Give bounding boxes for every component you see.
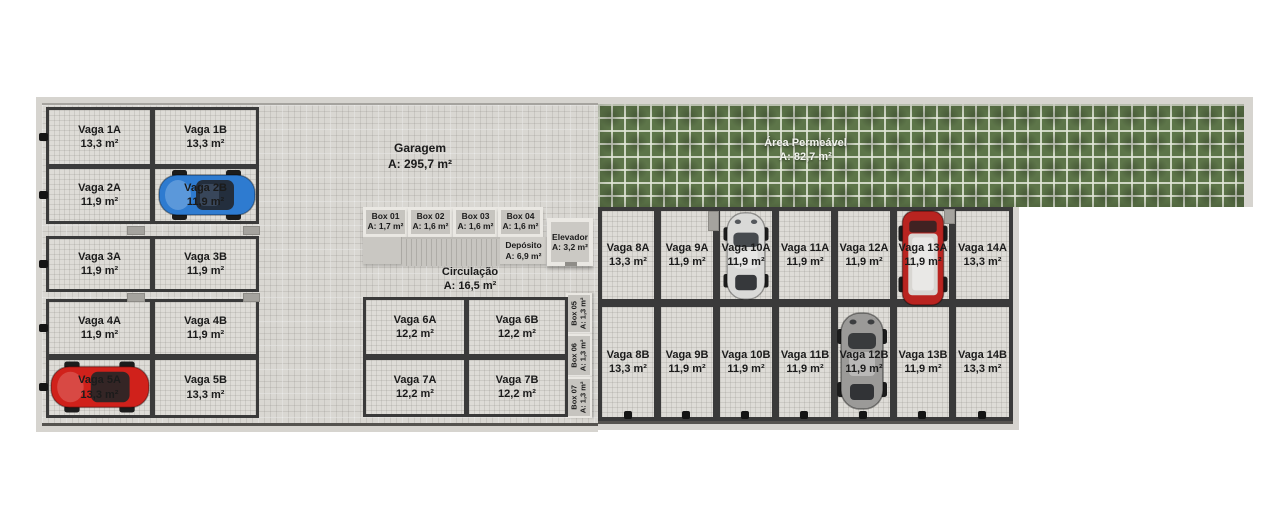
pillar [243, 226, 260, 235]
spot-name: Vaga 12A [840, 241, 889, 255]
parking-spot-1b: Vaga 1B13,3 m² [152, 107, 259, 167]
spot-area: 12,2 m² [394, 327, 437, 341]
parking-spot-3a: Vaga 3A11,9 m² [46, 236, 153, 292]
spot-area: 13,3 m² [78, 137, 121, 151]
spot-area: 11,9 m² [78, 264, 121, 278]
parking-spot-4a: Vaga 4A11,9 m² [46, 299, 153, 357]
box-07-area: A: 1,3 m² [579, 382, 588, 414]
spot-name: Vaga 6A [394, 313, 437, 327]
spot-area: 11,9 m² [722, 362, 771, 376]
garage-label: Garagem A: 295,7 m² [355, 141, 485, 172]
spot-name: Vaga 7B [496, 373, 539, 387]
spot-name: Vaga 1B [184, 123, 227, 137]
door-marker [624, 411, 632, 419]
spot-name: Vaga 2A [78, 181, 121, 195]
deposit-room: Depósito A: 6,9 m² [500, 237, 547, 264]
spot-area: 11,9 m² [78, 195, 121, 209]
parking-spot-8a: Vaga 8A13,3 m² [598, 207, 658, 303]
parking-spot-14b: Vaga 14B13,3 m² [952, 303, 1013, 421]
parking-spot-6b: Vaga 6B12,2 m² [466, 297, 568, 357]
parking-spot-11b: Vaga 11B11,9 m² [775, 303, 835, 421]
wall-post [39, 260, 48, 268]
parking-spot-4b: Vaga 4B11,9 m² [152, 299, 259, 357]
parking-spot-9b: Vaga 9B11,9 m² [657, 303, 717, 421]
storage-box-04: Box 04A: 1,6 m² [498, 207, 543, 237]
box-06-name: Box 06 [570, 340, 579, 372]
spot-area: 13,3 m² [958, 255, 1007, 269]
spot-name: Vaga 13A [899, 241, 948, 255]
spot-name: Vaga 4A [78, 314, 121, 328]
spot-name: Vaga 11A [781, 241, 829, 255]
parking-spot-10b: Vaga 10B11,9 m² [716, 303, 776, 421]
spot-area: 11,9 m² [184, 264, 227, 278]
parking-spot-14a: Vaga 14A13,3 m² [952, 207, 1013, 303]
spot-area: 11,9 m² [840, 255, 889, 269]
spot-area: 11,9 m² [781, 255, 829, 269]
parking-spot-3b: Vaga 3B11,9 m² [152, 236, 259, 292]
spot-area: 11,9 m² [781, 362, 829, 376]
elevator-size: A: 3,2 m² [552, 242, 588, 252]
spot-area: 11,9 m² [899, 362, 948, 376]
storage-box-02: Box 02A: 1,6 m² [408, 207, 453, 237]
door-marker [918, 411, 926, 419]
parking-spot-7b: Vaga 7B12,2 m² [466, 357, 568, 417]
pillar [708, 211, 719, 231]
garage-title: Garagem [355, 141, 485, 157]
parking-spot-5b: Vaga 5B13,3 m² [152, 357, 259, 418]
spot-area: 13,3 m² [607, 255, 650, 269]
box-05-area: A: 1,3 m² [579, 298, 588, 330]
door-marker [978, 411, 986, 419]
box-04-area: A: 1,6 m² [503, 222, 539, 232]
parking-spot-13b: Vaga 13B11,9 m² [893, 303, 953, 421]
spot-name: Vaga 3A [78, 250, 121, 264]
box-02-area: A: 1,6 m² [413, 222, 449, 232]
permeable-area-size: A: 82,7 m² [598, 150, 1013, 164]
spot-name: Vaga 14A [958, 241, 1007, 255]
spot-name: Vaga 10B [722, 348, 771, 362]
circulation-title: Circulação [370, 265, 570, 279]
spot-area: 13,3 m² [78, 388, 121, 402]
spot-name: Vaga 12B [840, 348, 889, 362]
parking-spot-8b: Vaga 8B13,3 m² [598, 303, 658, 421]
spot-area: 11,9 m² [184, 328, 227, 342]
storage-box-07: Box 07A: 1,3 m² [566, 377, 592, 418]
wall-post [39, 191, 48, 199]
spot-area: 13,3 m² [184, 137, 227, 151]
wall-post [39, 133, 48, 141]
garage-size: A: 295,7 m² [355, 157, 485, 173]
deposit-title: Depósito [505, 240, 541, 250]
permeable-area-title: Área Permeável [598, 136, 1013, 150]
spot-name: Vaga 13B [899, 348, 948, 362]
elevator-room: ElevadorA: 3,2 m² [547, 218, 593, 266]
spot-name: Vaga 6B [496, 313, 539, 327]
permeable-area: Área Permeável A: 82,7 m² [598, 97, 1253, 207]
spot-area: 12,2 m² [496, 387, 539, 401]
box-01-area: A: 1,7 m² [368, 222, 404, 232]
spot-name: Vaga 9A [666, 241, 709, 255]
spot-name: Vaga 4B [184, 314, 227, 328]
box-07-name: Box 07 [570, 382, 579, 414]
spot-name: Vaga 8B [607, 348, 650, 362]
parking-spot-11a: Vaga 11A11,9 m² [775, 207, 835, 303]
door-marker [741, 411, 749, 419]
parking-spot-1a: Vaga 1A13,3 m² [46, 107, 153, 167]
door-marker [800, 411, 808, 419]
staircase [402, 237, 500, 266]
pillar [127, 226, 145, 235]
spot-name: Vaga 10A [722, 241, 771, 255]
spot-name: Vaga 3B [184, 250, 227, 264]
storage-box-03: Box 03A: 1,6 m² [453, 207, 498, 237]
parking-spot-2a: Vaga 2A11,9 m² [46, 166, 153, 224]
spot-name: Vaga 1A [78, 123, 121, 137]
spot-area: 11,9 m² [666, 255, 709, 269]
spot-name: Vaga 5B [184, 373, 227, 387]
spot-area: 13,3 m² [607, 362, 650, 376]
circulation-size: A: 16,5 m² [370, 279, 570, 293]
spot-area: 12,2 m² [394, 387, 437, 401]
parking-spot-6a: Vaga 6A12,2 m² [363, 297, 467, 357]
pillar [127, 293, 145, 302]
spot-area: 13,3 m² [958, 362, 1007, 376]
spot-name: Vaga 5A [78, 373, 121, 387]
spot-area: 11,9 m² [899, 255, 948, 269]
wall-post [39, 324, 48, 332]
storage-box-05: Box 05A: 1,3 m² [566, 293, 592, 334]
box-03-area: A: 1,6 m² [458, 222, 494, 232]
spot-name: Vaga 7A [394, 373, 437, 387]
spot-area: 11,9 m² [184, 195, 227, 209]
stair-block: Depósito A: 6,9 m² [363, 237, 547, 264]
stair-landing [363, 237, 402, 264]
spot-area: 11,9 m² [722, 255, 771, 269]
box-05-name: Box 05 [570, 298, 579, 330]
floor-plan: Área Permeável A: 82,7 m² Garagem A: 295… [0, 0, 1280, 518]
permeable-area-label: Área Permeável A: 82,7 m² [598, 136, 1013, 165]
storage-box-01: Box 01A: 1,7 m² [363, 207, 408, 237]
deposit-size: A: 6,9 m² [506, 251, 542, 261]
spot-area: 11,9 m² [78, 328, 121, 342]
spot-area: 13,3 m² [184, 388, 227, 402]
wall-post [39, 383, 48, 391]
spot-name: Vaga 14B [958, 348, 1007, 362]
circulation-label: Circulação A: 16,5 m² [370, 265, 570, 294]
spot-name: Vaga 11B [781, 348, 829, 362]
spot-area: 12,2 m² [496, 327, 539, 341]
parking-spot-7a: Vaga 7A12,2 m² [363, 357, 467, 417]
spot-name: Vaga 2B [184, 181, 227, 195]
door-marker [682, 411, 690, 419]
pillar [243, 293, 260, 302]
spot-name: Vaga 9B [666, 348, 709, 362]
spot-name: Vaga 8A [607, 241, 650, 255]
box-06-area: A: 1,3 m² [579, 340, 588, 372]
spot-area: 11,9 m² [840, 362, 889, 376]
spot-area: 11,9 m² [666, 362, 709, 376]
storage-box-06: Box 06A: 1,3 m² [566, 334, 592, 377]
elevator-title: Elevador [552, 232, 588, 242]
parking-spot-12a: Vaga 12A11,9 m² [834, 207, 894, 303]
